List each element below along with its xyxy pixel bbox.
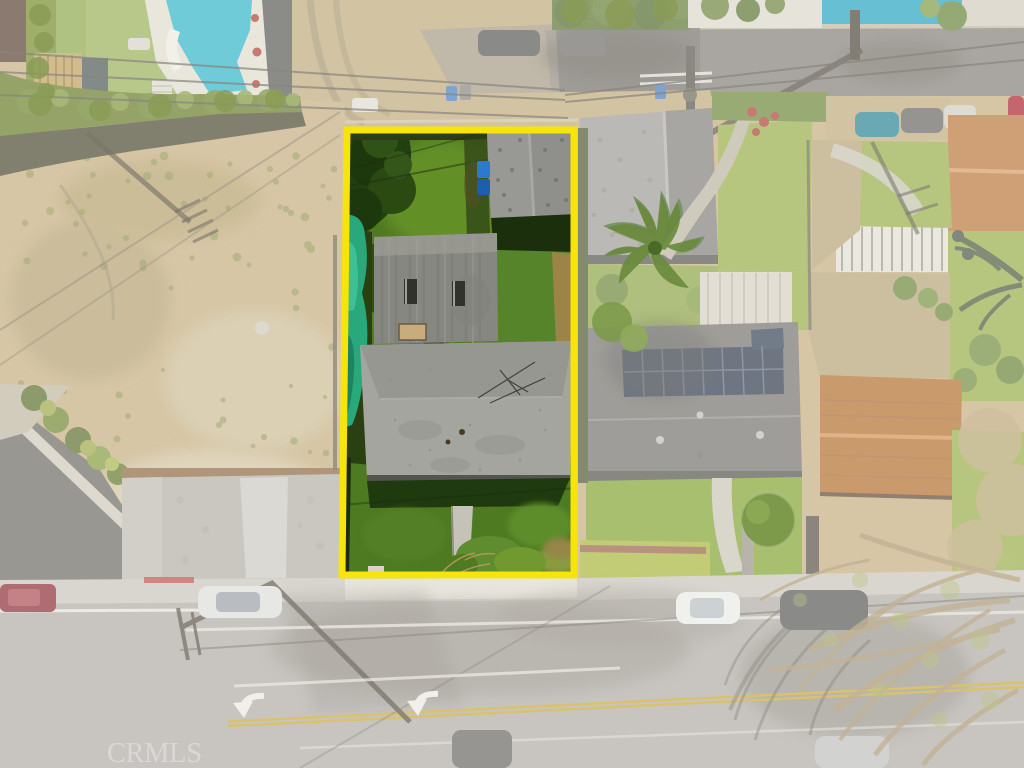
svg-text:CRMLS: CRMLS (107, 738, 202, 768)
